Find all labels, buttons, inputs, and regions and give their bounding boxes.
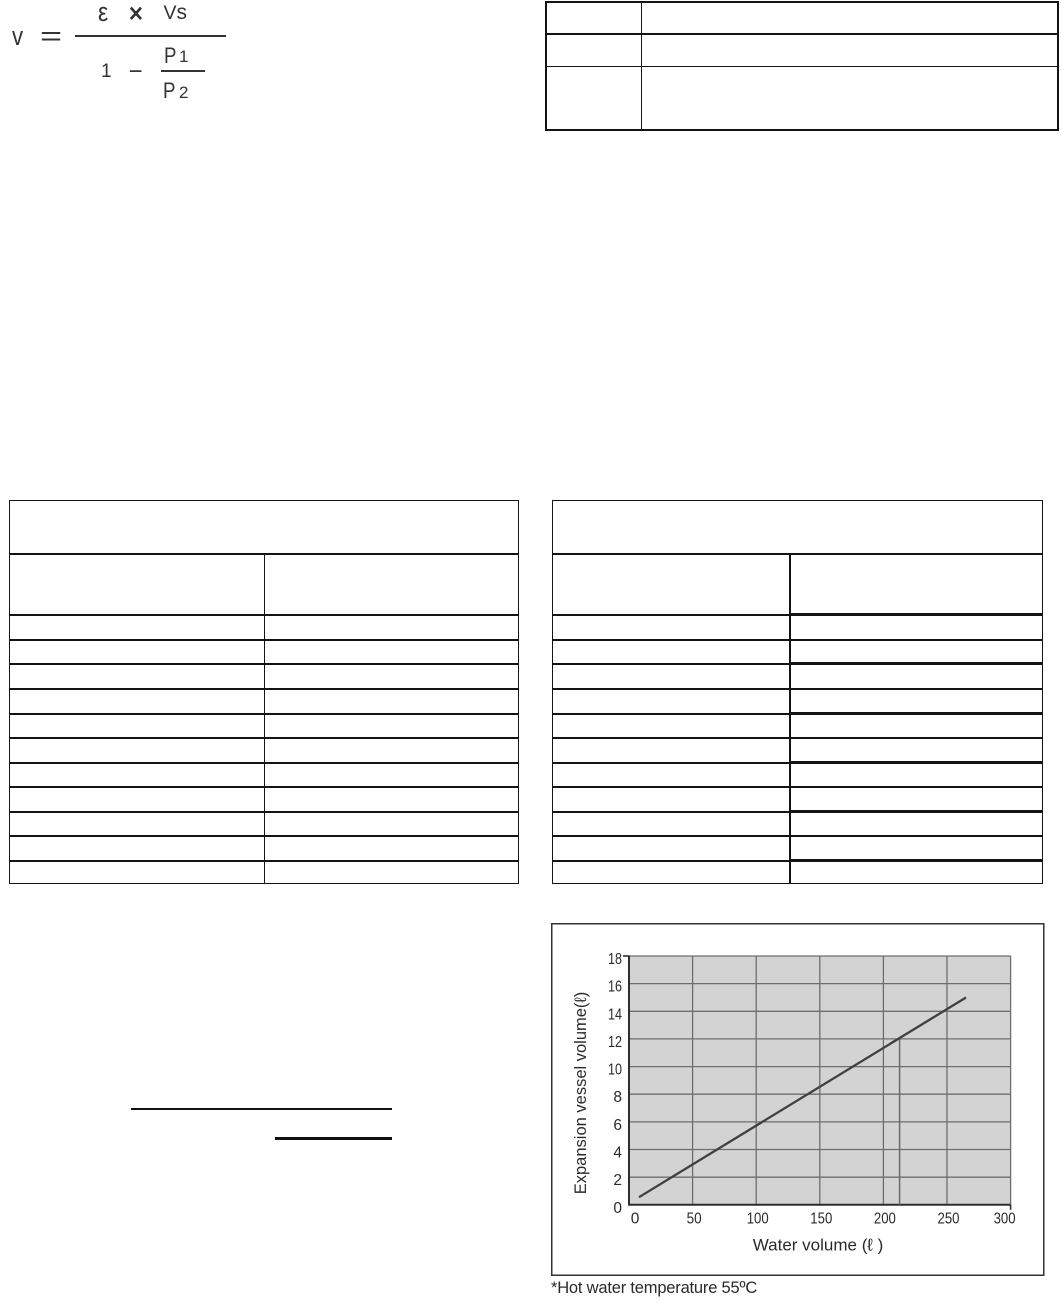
svg-text:250: 250 (938, 1210, 960, 1227)
svg-text:4: 4 (613, 1145, 622, 1162)
svg-text:6: 6 (613, 1117, 622, 1134)
svg-text:18: 18 (608, 951, 622, 968)
svg-text:14: 14 (608, 1006, 622, 1023)
svg-text:300: 300 (994, 1210, 1016, 1227)
svg-text:12: 12 (608, 1034, 622, 1051)
svg-text:50: 50 (687, 1210, 702, 1227)
svg-text:Expansion vessel volume(ℓ): Expansion vessel volume(ℓ) (572, 992, 590, 1195)
svg-text:150: 150 (810, 1210, 832, 1227)
svg-text:0: 0 (613, 1200, 622, 1217)
svg-text:16: 16 (608, 979, 622, 996)
svg-text:10: 10 (608, 1062, 622, 1079)
svg-text:100: 100 (747, 1210, 769, 1227)
svg-text:Water volume (ℓ ): Water volume (ℓ ) (753, 1236, 884, 1255)
svg-text:8: 8 (613, 1089, 622, 1106)
svg-text:200: 200 (874, 1210, 896, 1227)
svg-text:2: 2 (613, 1172, 622, 1189)
svg-text:0: 0 (631, 1210, 640, 1227)
